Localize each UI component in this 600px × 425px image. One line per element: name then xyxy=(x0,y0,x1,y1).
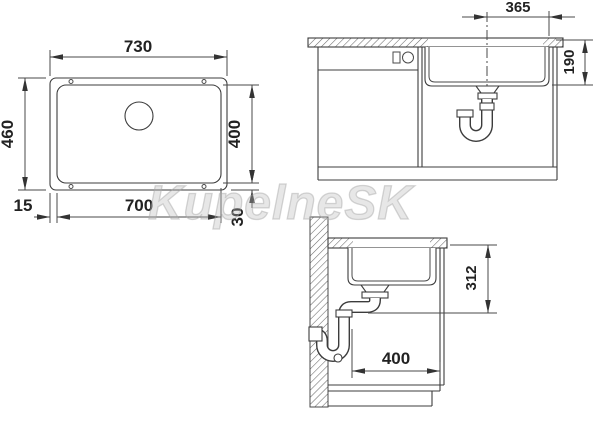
sink-technical-drawing: 730 460 400 30 15 xyxy=(0,0,600,425)
dim-label-730: 730 xyxy=(124,37,152,56)
dim-label-30: 30 xyxy=(228,208,247,227)
worktop-side-hatch-right xyxy=(430,238,447,248)
circle-icon xyxy=(403,52,414,63)
fixing-clips xyxy=(69,80,206,189)
siphon-trap-front xyxy=(457,86,499,136)
dim-bowl-front-to-back: 400 xyxy=(352,329,440,378)
worktop-hatch-right xyxy=(543,38,563,47)
dim-bottom-offset: 30 xyxy=(228,166,259,226)
worktop-side-hatch-left xyxy=(328,238,353,248)
drawing-canvas: 730 460 400 30 15 xyxy=(0,0,600,425)
worktop-hatch-left xyxy=(308,38,428,47)
dim-label-312: 312 xyxy=(463,265,480,290)
cabinet-cutout-icons xyxy=(393,52,414,63)
dim-inner-depth: 400 xyxy=(223,85,259,183)
dim-label-365: 365 xyxy=(505,0,530,16)
front-view: 365 190 xyxy=(308,0,593,180)
dim-label-15: 15 xyxy=(14,196,33,215)
dim-center-to-edge: 365 xyxy=(462,0,575,36)
dim-outer-width: 730 xyxy=(50,37,227,76)
dim-label-460: 460 xyxy=(0,120,17,148)
dim-outer-depth: 460 xyxy=(0,78,46,190)
dim-inner-width: 700 xyxy=(57,188,221,223)
drain-hole xyxy=(125,102,153,130)
dim-label-190: 190 xyxy=(561,49,578,74)
dim-label-700: 700 xyxy=(125,196,153,215)
dim-label-400-top: 400 xyxy=(225,120,244,148)
rect-icon xyxy=(393,52,400,63)
sink-outer-rim xyxy=(50,78,227,190)
bowl-side-outer xyxy=(348,248,436,285)
top-view: 730 460 400 30 15 xyxy=(0,37,259,226)
sink-bowl-inner xyxy=(57,85,221,183)
side-view: 312 400 xyxy=(309,217,497,407)
dim-label-400-side: 400 xyxy=(382,349,410,368)
dim-side-offset: 15 xyxy=(14,193,57,223)
wall-hatch xyxy=(310,217,328,407)
